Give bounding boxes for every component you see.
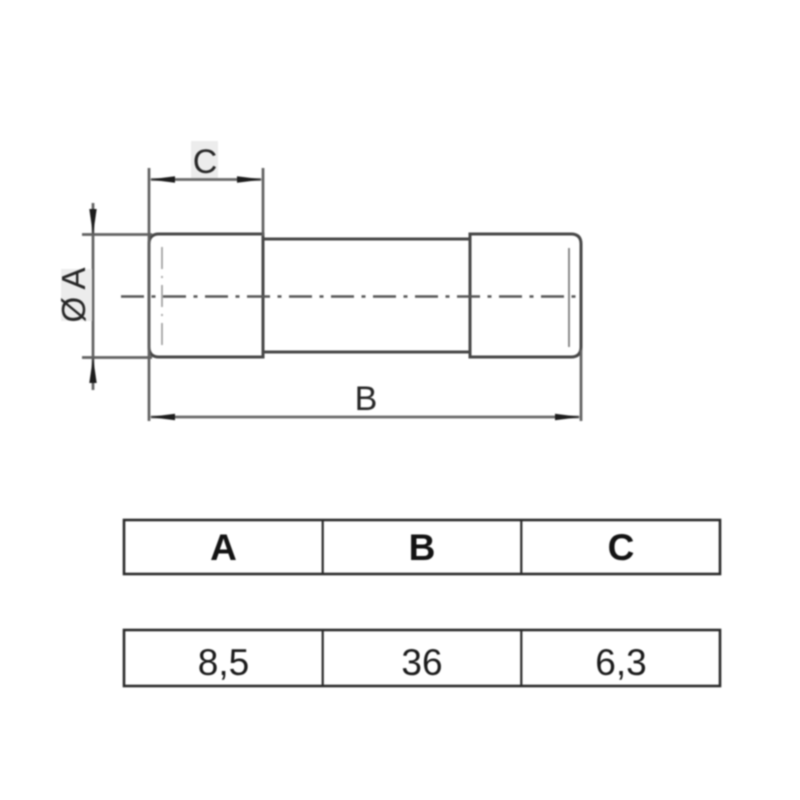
svg-text:C: C bbox=[608, 527, 635, 568]
svg-text:A: A bbox=[210, 527, 237, 568]
svg-text:B: B bbox=[355, 380, 378, 418]
svg-text:B: B bbox=[409, 527, 436, 568]
svg-text:6,3: 6,3 bbox=[595, 642, 646, 683]
svg-text:36: 36 bbox=[401, 642, 442, 683]
svg-text:Ø A: Ø A bbox=[55, 267, 92, 322]
svg-text:C: C bbox=[193, 143, 218, 181]
svg-text:8,5: 8,5 bbox=[198, 642, 249, 683]
